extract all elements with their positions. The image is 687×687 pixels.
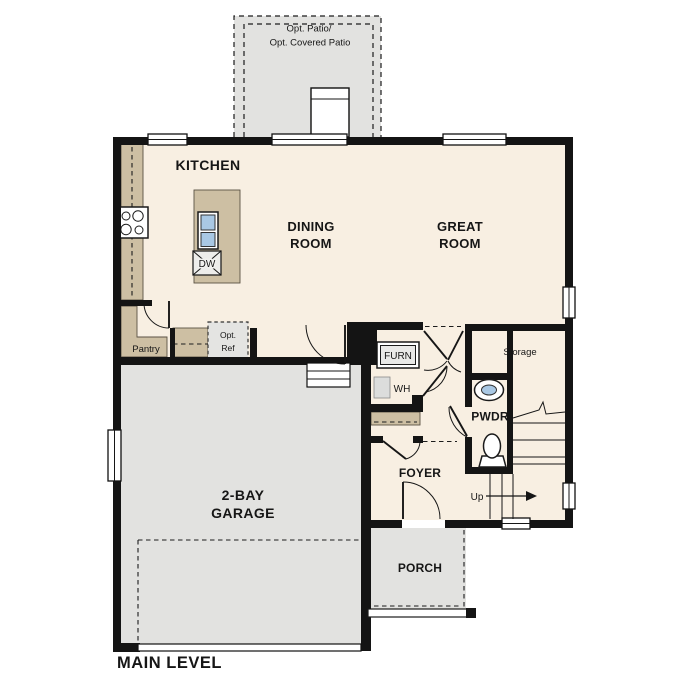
dishwasher-label: DW <box>199 259 216 270</box>
dining-label-line2: ROOM <box>290 236 332 251</box>
exterior-wall-right <box>565 137 573 528</box>
drop-zone-counter <box>173 328 208 357</box>
storage-label: Storage <box>503 347 536 358</box>
opt-patio-area: Opt. Patio/ Opt. Covered Patio <box>234 16 381 137</box>
porch-post <box>466 608 476 618</box>
stove-cooktop <box>117 207 148 238</box>
pwdr-wall-left-upper <box>465 324 472 407</box>
closet-wall-stub-left <box>371 436 383 443</box>
garage-wall-bottom-corner <box>113 643 140 652</box>
furnace-label: FURN <box>384 351 412 362</box>
counter-wall-stub <box>170 328 175 357</box>
garage-door <box>138 644 361 651</box>
patio-label-line1: Opt. Patio/ <box>287 24 332 35</box>
garage-entry-steps <box>307 363 350 387</box>
sink-basin <box>201 233 215 247</box>
kitchen-label: KITCHEN <box>175 157 240 173</box>
pwdr-wall-bottom <box>465 467 513 474</box>
fireplace-bumpout <box>311 88 349 137</box>
porch-label: PORCH <box>398 561 442 575</box>
storage-wall-top <box>465 324 573 331</box>
greatroom-wall-bottom <box>371 322 423 330</box>
dining-label-line1: DINING <box>287 219 334 234</box>
opt-ref-label-line2: Ref <box>221 343 235 353</box>
exterior-wall-left <box>113 137 121 651</box>
floor-plan-page: Opt. Patio/ Opt. Covered Patio DW Pantry… <box>0 0 687 687</box>
opt-ref-label-line1: Opt. <box>220 330 236 340</box>
ref-wall-stub <box>250 328 257 357</box>
pantry-wall-stub <box>121 300 152 306</box>
greatroom-label-line1: GREAT <box>437 219 483 234</box>
pantry-label: Pantry <box>132 344 160 355</box>
toilet-bowl-icon <box>484 434 501 458</box>
pwdr-label: PWDR <box>471 410 509 424</box>
closet-wall-stub-right <box>413 436 423 443</box>
garage-wall-right <box>361 322 371 651</box>
sink-basin-icon <box>482 385 497 395</box>
floor-plan-drawing: Opt. Patio/ Opt. Covered Patio DW Pantry… <box>0 0 687 687</box>
closet-wall-stub <box>412 395 423 406</box>
water-heater-box <box>374 377 390 398</box>
coat-closet-shelf <box>371 412 420 425</box>
patio-label-line2: Opt. Covered Patio <box>270 38 351 49</box>
greatroom-label-line2: ROOM <box>439 236 481 251</box>
water-heater-label: WH <box>394 384 411 395</box>
exterior-wall-bottom-a <box>361 520 402 528</box>
porch-front-edge <box>368 609 467 617</box>
foyer-label: FOYER <box>399 466 441 480</box>
stairs-up-label: Up <box>471 492 484 503</box>
garage-label-line1: 2-BAY <box>222 487 265 503</box>
plan-title: MAIN LEVEL <box>117 654 222 672</box>
sink-basin <box>201 215 215 230</box>
garage-label-line2: GARAGE <box>211 505 275 521</box>
